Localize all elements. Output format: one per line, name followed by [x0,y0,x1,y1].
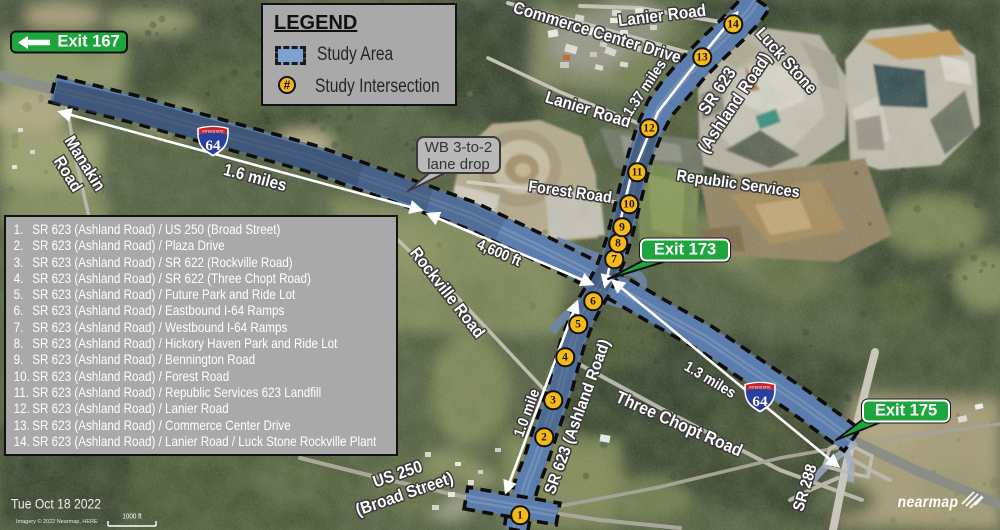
svg-text:INTERSTATE: INTERSTATE [749,385,771,389]
svg-text:INTERSTATE: INTERSTATE [202,129,224,133]
svg-text:64: 64 [205,138,221,154]
svg-text:64: 64 [752,394,768,410]
